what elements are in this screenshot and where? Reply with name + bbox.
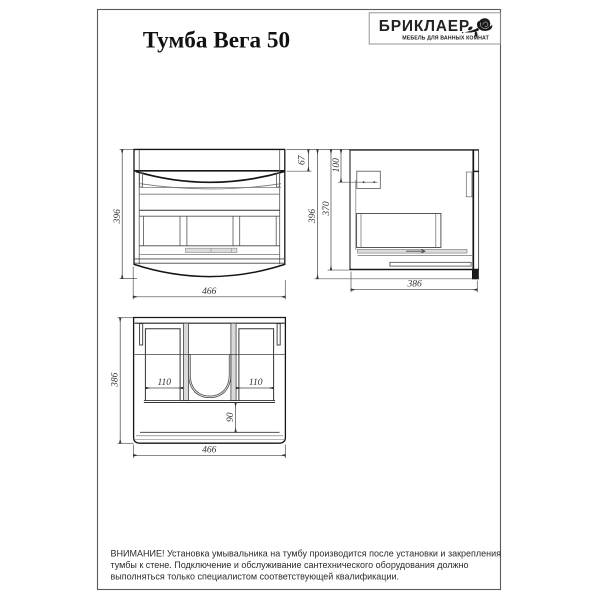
svg-text:БРИКЛАЕР: БРИКЛАЕР	[379, 18, 470, 35]
svg-text:90: 90	[226, 412, 236, 422]
svg-text:370: 370	[322, 201, 332, 217]
svg-text:386: 386	[111, 372, 121, 388]
svg-text:466: 466	[202, 445, 217, 455]
svg-text:110: 110	[249, 378, 263, 388]
svg-text:МЕБЕЛЬ ДЛЯ ВАННЫХ КОМНАТ: МЕБЕЛЬ ДЛЯ ВАННЫХ КОМНАТ	[402, 36, 489, 42]
svg-text:396: 396	[113, 209, 123, 225]
svg-text:100: 100	[332, 158, 342, 173]
svg-text:396: 396	[308, 209, 318, 225]
svg-text:67: 67	[298, 154, 308, 165]
svg-text:ВНИМАНИЕ! Установка умывальник: ВНИМАНИЕ! Установка умывальника на тумбу…	[111, 548, 502, 558]
svg-text:110: 110	[158, 378, 172, 388]
svg-text:386: 386	[406, 280, 422, 290]
svg-text:тумбы к стене. Подключение и о: тумбы к стене. Подключение и обслуживани…	[111, 560, 469, 570]
svg-text:Тумба Вега 50: Тумба Вега 50	[143, 28, 290, 54]
svg-text:466: 466	[202, 287, 217, 297]
svg-text:выполняться только специалисто: выполняться только специалистом соответс…	[111, 572, 400, 582]
